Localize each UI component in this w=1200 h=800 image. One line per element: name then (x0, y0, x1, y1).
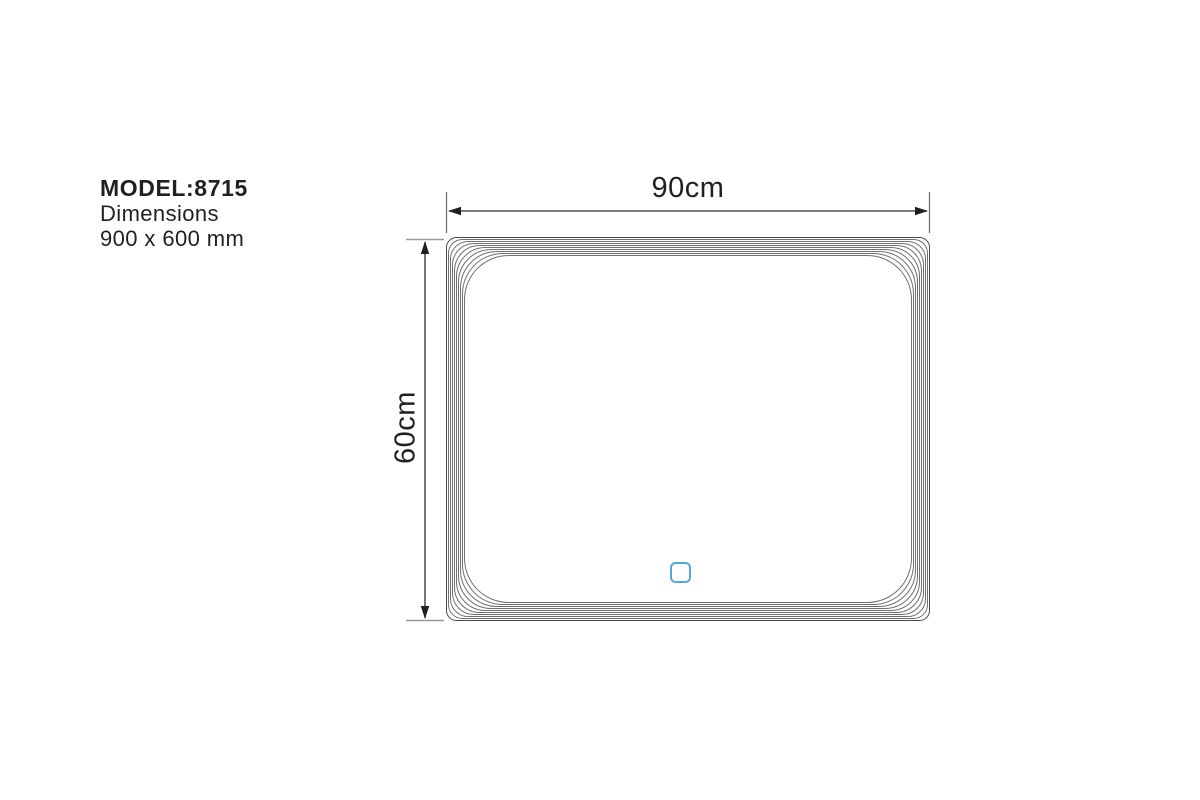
arrow-down-icon (421, 606, 429, 619)
frame-line (451, 242, 926, 617)
frame-line (459, 250, 918, 609)
arrow-right-icon (915, 207, 928, 215)
touch-sensor-icon (671, 563, 690, 582)
frame-line (449, 240, 928, 619)
frame-line (463, 254, 914, 605)
arrow-up-icon (421, 241, 429, 254)
mirror-diagram (0, 0, 1200, 800)
diagram-canvas: MODEL:8715 Dimensions 900 x 600 mm (0, 0, 1200, 800)
arrow-left-icon (448, 207, 461, 215)
frame-line (461, 252, 916, 607)
width-dimension-label: 90cm (588, 172, 788, 205)
frame-line (465, 256, 912, 603)
frame-line (455, 246, 922, 613)
frame-line (453, 244, 924, 615)
frame-line (457, 248, 920, 611)
height-dimension-label: 60cm (390, 328, 423, 528)
